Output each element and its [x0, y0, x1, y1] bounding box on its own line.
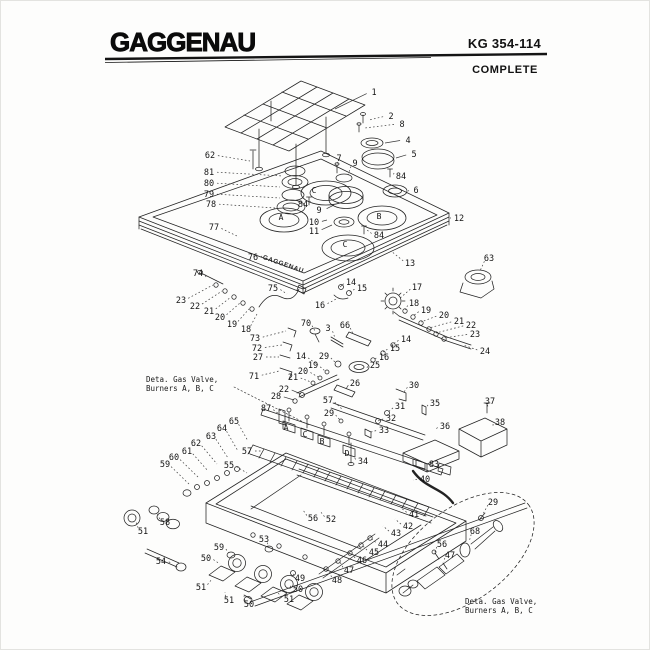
leader-line-64 — [227, 431, 238, 451]
part-label-84: 84 — [298, 200, 308, 210]
part-label-20: 20 — [215, 313, 225, 323]
part-label-4: 4 — [405, 136, 410, 146]
part-label-76: 76 — [248, 253, 258, 263]
leader-line-55 — [236, 467, 247, 473]
leader-line-49 — [293, 572, 294, 575]
part-label-63: 63 — [206, 432, 216, 442]
part-label-52: 52 — [326, 515, 336, 525]
manifold-rail — [261, 389, 451, 523]
leader-line-34 — [354, 457, 356, 459]
part-label-11: 11 — [309, 227, 319, 237]
part-label-60: 60 — [169, 453, 179, 463]
part-label-36: 36 — [440, 422, 450, 432]
part-label-29: 29 — [319, 352, 329, 362]
part-label-22: 22 — [279, 385, 289, 395]
part-label-45: 45 — [369, 548, 379, 558]
part-label-37: 37 — [485, 397, 495, 407]
part-label-59: 59 — [160, 460, 170, 470]
part-label-21: 21 — [204, 307, 214, 317]
part-label-9: 9 — [352, 159, 357, 169]
leader-line-19 — [238, 309, 249, 321]
leader-line-13 — [391, 251, 403, 261]
part-label-14: 14 — [401, 335, 411, 345]
part-label-20: 20 — [439, 311, 449, 321]
leader-line-63 — [216, 439, 228, 458]
leader-line-60 — [180, 460, 199, 478]
header-rule — [105, 54, 547, 59]
leader-line-30 — [404, 387, 407, 392]
part-label-70: 70 — [301, 319, 311, 329]
part-label-14: 14 — [346, 278, 356, 288]
leader-line-17 — [399, 289, 410, 299]
leader-line-21 — [216, 297, 231, 309]
part-label-26: 26 — [350, 379, 360, 389]
leader-lines — [136, 94, 493, 601]
part-label-16: 16 — [379, 353, 389, 363]
part-label-15: 15 — [357, 284, 367, 294]
part-label-78: 78 — [206, 200, 216, 210]
leader-line-78 — [219, 204, 275, 208]
part-label-41: 41 — [409, 510, 419, 520]
part-label-3: 3 — [325, 324, 330, 334]
part-label-64: 64 — [217, 424, 227, 434]
part-label-19: 19 — [421, 306, 431, 316]
part-label-77: 77 — [209, 223, 219, 233]
part-label-68: 68 — [470, 527, 480, 537]
part-label-43: 43 — [391, 529, 401, 539]
igniter-parts — [198, 270, 472, 440]
leader-line-33 — [371, 431, 376, 432]
part-label-35: 35 — [430, 399, 440, 409]
part-label-55: 55 — [224, 461, 234, 471]
diagram-artwork — [124, 81, 556, 640]
part-label-51: 51 — [196, 583, 206, 593]
leader-line-20 — [421, 316, 436, 322]
leader-line-18 — [251, 314, 257, 326]
leader-line-76 — [261, 256, 262, 257]
part-label-59: 59 — [214, 543, 224, 553]
burner-letter-B: B — [377, 212, 382, 221]
part-label-48: 48 — [332, 576, 342, 586]
part-label-42: 42 — [403, 522, 413, 532]
part-label-22: 22 — [190, 302, 200, 312]
part-label-61: 61 — [182, 447, 192, 457]
leader-line-4 — [385, 141, 400, 144]
part-label-19: 19 — [308, 361, 318, 371]
page: GAGGENAU KG 354-114 COMPLETE — [0, 0, 650, 650]
part-label-50: 50 — [244, 600, 254, 610]
part-label-47: 47 — [445, 551, 455, 561]
part-label-58: 58 — [160, 518, 170, 528]
thermostat-boxes — [403, 403, 507, 472]
part-label-6: 6 — [413, 186, 418, 196]
part-label-38: 38 — [495, 418, 505, 428]
part-label-23: 23 — [176, 296, 186, 306]
leader-line-59 — [226, 549, 229, 553]
part-label-33: 33 — [379, 426, 389, 436]
part-label-81: 81 — [204, 168, 214, 178]
leader-line-23 — [188, 285, 213, 298]
part-label-62: 62 — [191, 439, 201, 449]
part-label-56: 56 — [437, 540, 447, 550]
part-label-46: 46 — [357, 556, 367, 566]
part-label-21: 21 — [454, 317, 464, 327]
part-label-54: 54 — [156, 557, 166, 567]
leader-line-84 — [367, 230, 372, 234]
burner-letter-A: A — [279, 213, 284, 222]
leader-line-65 — [239, 424, 248, 441]
part-label-23: 23 — [470, 330, 480, 340]
part-label-21: 21 — [288, 373, 298, 383]
leader-line-52 — [320, 511, 325, 517]
part-label-32: 32 — [386, 414, 396, 424]
leader-line-19 — [320, 367, 325, 371]
leader-line-9 — [327, 205, 334, 209]
leader-line-51 — [208, 579, 213, 585]
part-label-27: 27 — [253, 353, 263, 363]
part-label-19: 19 — [227, 320, 237, 330]
leader-line-61 — [193, 454, 208, 471]
leader-line-21 — [301, 378, 311, 382]
leader-line-40 — [413, 479, 417, 480]
part-label-62: 62 — [205, 151, 215, 161]
part-label-15: 15 — [390, 344, 400, 354]
part-label-57: 57 — [323, 396, 333, 406]
leader-line-11 — [322, 225, 332, 230]
leader-line-73 — [263, 331, 286, 337]
leader-line-22 — [202, 291, 222, 304]
leader-line-72 — [265, 345, 282, 348]
leader-line-62 — [202, 446, 217, 464]
leader-line-23 — [444, 335, 467, 339]
leader-line-24 — [463, 345, 477, 350]
part-label-73: 73 — [250, 334, 260, 344]
part-label-40: 40 — [420, 475, 430, 485]
part-label-20: 20 — [298, 367, 308, 377]
grate-part — [225, 81, 365, 189]
part-label-65: 65 — [229, 417, 239, 427]
burner-letter-D: D — [345, 449, 350, 458]
leader-line-51 — [278, 593, 282, 597]
leader-line-75 — [280, 290, 287, 294]
leader-line-10 — [322, 220, 327, 221]
part-label-53: 53 — [259, 535, 269, 545]
leader-line-25 — [367, 366, 368, 368]
leader-line-16 — [328, 298, 339, 304]
burner-letter-C: C — [303, 430, 308, 439]
part-label-80: 80 — [204, 179, 214, 189]
part-label-12: 12 — [454, 214, 464, 224]
left-fittings — [124, 467, 240, 572]
part-label-74: 74 — [193, 269, 203, 279]
leader-line-26 — [346, 385, 348, 389]
leader-line-29 — [336, 415, 340, 420]
burner-letter-C: C — [312, 186, 317, 195]
burner-parts-top — [250, 113, 494, 299]
part-label-84: 84 — [374, 231, 384, 241]
part-label-51: 51 — [138, 527, 148, 537]
part-label-16: 16 — [315, 301, 325, 311]
burner-letter-A: A — [284, 423, 289, 432]
part-label-83: 83 — [429, 460, 439, 470]
part-label-29: 29 — [488, 498, 498, 508]
part-label-66: 66 — [340, 321, 350, 331]
part-label-31: 31 — [395, 402, 405, 412]
leader-line-54 — [169, 562, 171, 563]
part-label-79: 79 — [204, 190, 214, 200]
part-label-84: 84 — [396, 172, 406, 182]
part-label-49: 49 — [295, 574, 305, 584]
part-label-29: 29 — [324, 409, 334, 419]
burner-letter-B: B — [320, 437, 325, 446]
part-label-44: 44 — [378, 540, 388, 550]
part-label-51: 51 — [224, 596, 234, 606]
part-label-14: 14 — [296, 352, 306, 362]
leader-line-3 — [333, 331, 335, 338]
leader-line-59 — [171, 467, 190, 485]
part-label-5: 5 — [411, 150, 416, 160]
leader-line-71 — [262, 371, 279, 375]
part-label-18: 18 — [409, 299, 419, 309]
part-label-75: 75 — [268, 284, 278, 294]
part-label-50: 50 — [293, 585, 303, 595]
part-label-57: 57 — [242, 447, 252, 457]
leader-line-79 — [217, 194, 280, 198]
burner-letter-C: C — [343, 240, 348, 249]
part-label-71: 71 — [249, 372, 259, 382]
leader-line-2 — [369, 117, 383, 120]
leader-line-77 — [221, 229, 239, 238]
leader-line-42 — [395, 519, 401, 524]
part-label-56: 56 — [308, 514, 318, 524]
part-label-9: 9 — [316, 206, 321, 216]
part-label-13: 13 — [405, 259, 415, 269]
leader-line-62 — [218, 156, 250, 161]
part-label-50: 50 — [201, 554, 211, 564]
leader-line-5 — [396, 155, 406, 158]
part-label-34: 34 — [358, 457, 368, 467]
part-label-1: 1 — [371, 88, 376, 98]
leader-line-8 — [365, 124, 394, 128]
part-label-8: 8 — [399, 120, 404, 130]
gas-valve-note-2: Deta. Gas Valve,Burners A, B, C — [465, 597, 537, 615]
part-label-2: 2 — [388, 112, 393, 122]
part-label-7: 7 — [336, 154, 341, 164]
part-label-87: 87 — [261, 404, 271, 414]
gas-valve-note-1: Deta. Gas Valve,Burners A, B, C — [146, 375, 218, 393]
leader-line-81 — [217, 172, 283, 176]
leader-line-21 — [429, 322, 451, 328]
leader-line-36 — [435, 428, 438, 431]
part-label-63: 63 — [484, 254, 494, 264]
leader-line-56 — [303, 510, 307, 516]
leader-line-43 — [383, 526, 389, 531]
leader-line-50 — [213, 560, 220, 564]
part-label-47: 47 — [344, 566, 354, 576]
exploded-parts-diagram: GAGGENAU 1284584679628180797877768491011… — [1, 1, 650, 650]
part-label-17: 17 — [412, 283, 422, 293]
leader-line-20 — [227, 303, 240, 315]
part-label-24: 24 — [480, 347, 490, 357]
leader-line-20 — [310, 373, 318, 378]
leader-line-50 — [289, 584, 291, 587]
leader-line-28 — [284, 397, 294, 400]
leader-line-9 — [348, 167, 351, 176]
part-label-51: 51 — [284, 595, 294, 605]
part-label-30: 30 — [409, 381, 419, 391]
